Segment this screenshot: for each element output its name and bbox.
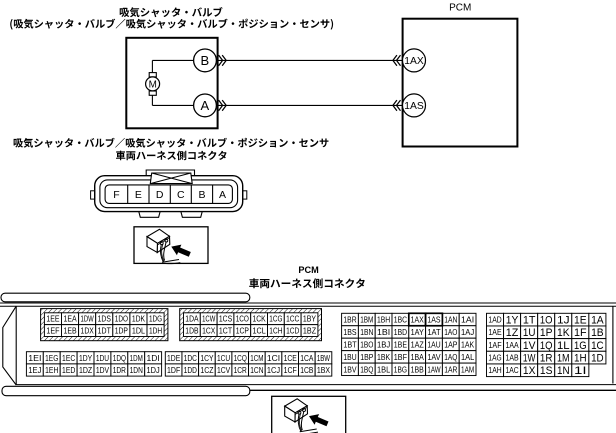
svg-text:1BA: 1BA <box>411 352 425 362</box>
svg-text:1DA: 1DA <box>185 314 199 324</box>
svg-text:1C: 1C <box>591 340 604 352</box>
svg-text:1DQ: 1DQ <box>113 353 127 363</box>
svg-text:1DO: 1DO <box>115 314 129 324</box>
svg-text:1AK: 1AK <box>461 339 475 349</box>
svg-text:1CF: 1CF <box>284 365 297 375</box>
svg-text:1CE: 1CE <box>284 353 298 363</box>
svg-text:1B: 1B <box>591 327 604 339</box>
svg-text:1CB: 1CB <box>300 365 314 375</box>
svg-text:1CA: 1CA <box>300 353 314 363</box>
svg-text:1CK: 1CK <box>253 314 267 324</box>
svg-text:1EH: 1EH <box>45 365 58 375</box>
svg-text:1DX: 1DX <box>81 326 95 336</box>
svg-text:1BW: 1BW <box>317 353 330 363</box>
svg-text:1CC: 1CC <box>286 314 299 324</box>
svg-text:1DM: 1DM <box>130 353 143 363</box>
svg-text:1AY: 1AY <box>411 327 425 337</box>
svg-text:E: E <box>135 189 142 201</box>
svg-text:1EI: 1EI <box>28 353 41 363</box>
svg-text:1Y: 1Y <box>506 315 519 327</box>
svg-text:1DI: 1DI <box>147 353 160 363</box>
svg-text:C: C <box>177 189 185 201</box>
svg-text:1EE: 1EE <box>46 314 60 324</box>
svg-text:1AF: 1AF <box>488 340 501 350</box>
svg-text:1R: 1R <box>540 353 553 365</box>
svg-text:1J: 1J <box>557 315 570 327</box>
svg-text:B: B <box>198 189 205 201</box>
svg-text:1BK: 1BK <box>377 352 391 362</box>
svg-text:1AL: 1AL <box>461 352 475 362</box>
svg-text:1BJ: 1BJ <box>377 339 390 349</box>
svg-text:1AS: 1AS <box>404 101 424 112</box>
svg-text:1BV: 1BV <box>343 364 357 374</box>
svg-text:1DZ: 1DZ <box>79 365 92 375</box>
svg-text:1DT: 1DT <box>98 326 111 336</box>
svg-text:1BU: 1BU <box>343 352 356 362</box>
svg-text:1AH: 1AH <box>488 365 501 375</box>
svg-text:1DP: 1DP <box>115 326 129 336</box>
svg-text:1CT: 1CT <box>219 326 232 336</box>
svg-text:1EJ: 1EJ <box>28 365 41 375</box>
svg-text:1L: 1L <box>557 340 570 352</box>
svg-text:1EB: 1EB <box>63 326 77 336</box>
svg-text:1BZ: 1BZ <box>303 326 316 336</box>
svg-text:1AR: 1AR <box>444 364 457 374</box>
svg-text:1CX: 1CX <box>202 326 216 336</box>
svg-text:1DN: 1DN <box>130 365 143 375</box>
svg-text:1A: 1A <box>591 315 604 327</box>
svg-text:1AX: 1AX <box>404 56 424 67</box>
svg-text:1DH: 1DH <box>149 326 162 336</box>
svg-text:1DL: 1DL <box>132 326 146 336</box>
svg-text:1CL: 1CL <box>253 326 267 336</box>
svg-text:1BM: 1BM <box>360 314 373 324</box>
svg-text:1CO: 1CO <box>236 314 250 324</box>
svg-text:1CS: 1CS <box>219 314 233 324</box>
svg-text:1AG: 1AG <box>488 353 501 363</box>
svg-text:1CJ: 1CJ <box>267 365 280 375</box>
svg-text:1CM: 1CM <box>250 353 263 363</box>
svg-text:1CI: 1CI <box>267 353 280 363</box>
svg-text:1CP: 1CP <box>236 326 250 336</box>
svg-text:1BY: 1BY <box>303 314 317 324</box>
svg-text:1CQ: 1CQ <box>234 353 248 363</box>
svg-text:1AD: 1AD <box>488 315 501 325</box>
svg-text:1DB: 1DB <box>185 326 199 336</box>
svg-text:1AB: 1AB <box>505 353 519 363</box>
svg-text:1AE: 1AE <box>488 327 502 337</box>
svg-text:1BE: 1BE <box>394 339 408 349</box>
svg-text:1DR: 1DR <box>113 365 126 375</box>
svg-text:1CW: 1CW <box>202 314 215 324</box>
svg-text:1AQ: 1AQ <box>444 352 458 362</box>
svg-text:1DY: 1DY <box>79 353 93 363</box>
svg-text:1AV: 1AV <box>427 352 441 362</box>
svg-text:1AM: 1AM <box>461 364 474 374</box>
svg-text:1DF: 1DF <box>167 365 180 375</box>
svg-text:1P: 1P <box>540 327 553 339</box>
svg-text:1AO: 1AO <box>444 327 458 337</box>
svg-text:PCM: PCM <box>298 265 319 275</box>
svg-text:1CU: 1CU <box>217 353 230 363</box>
svg-text:1CR: 1CR <box>234 365 247 375</box>
svg-text:1BO: 1BO <box>360 339 374 349</box>
svg-text:A: A <box>200 98 209 113</box>
svg-text:1AJ: 1AJ <box>461 327 474 337</box>
svg-text:1EF: 1EF <box>46 326 59 336</box>
svg-text:1H: 1H <box>574 353 587 365</box>
svg-text:1O: 1O <box>540 315 553 327</box>
svg-text:M: M <box>149 80 157 91</box>
svg-text:1EC: 1EC <box>62 353 75 363</box>
svg-text:1DE: 1DE <box>167 353 181 363</box>
svg-text:1AP: 1AP <box>444 339 458 349</box>
svg-text:D: D <box>156 189 164 201</box>
svg-text:1EA: 1EA <box>63 314 77 324</box>
svg-text:1CH: 1CH <box>269 326 282 336</box>
svg-text:1BH: 1BH <box>377 314 390 324</box>
svg-text:1AA: 1AA <box>505 340 519 350</box>
svg-text:1BC: 1BC <box>394 314 407 324</box>
svg-text:1BN: 1BN <box>360 327 373 337</box>
svg-text:1G: 1G <box>574 340 587 352</box>
svg-text:1E: 1E <box>574 315 587 327</box>
svg-text:1T: 1T <box>523 315 536 327</box>
svg-text:1F: 1F <box>574 327 587 339</box>
svg-text:1AI: 1AI <box>461 314 474 324</box>
svg-text:1V: 1V <box>523 340 536 352</box>
svg-text:1DK: 1DK <box>132 314 146 324</box>
svg-text:1DC: 1DC <box>184 353 197 363</box>
svg-text:1Z: 1Z <box>506 327 519 339</box>
svg-text:1CV: 1CV <box>217 365 231 375</box>
svg-text:1BF: 1BF <box>394 352 407 362</box>
svg-text:1AC: 1AC <box>505 365 518 375</box>
svg-text:1BQ: 1BQ <box>360 364 374 374</box>
svg-text:1CG: 1CG <box>269 314 282 324</box>
svg-text:1BB: 1BB <box>411 364 425 374</box>
svg-text:1BI: 1BI <box>377 327 390 337</box>
svg-text:1U: 1U <box>523 327 536 339</box>
svg-text:1X: 1X <box>523 365 536 377</box>
svg-text:1CY: 1CY <box>200 353 214 363</box>
svg-text:1S: 1S <box>540 365 553 377</box>
svg-text:1DD: 1DD <box>184 365 197 375</box>
svg-text:1CD: 1CD <box>286 326 299 336</box>
svg-text:1EG: 1EG <box>45 353 58 363</box>
svg-text:1BG: 1BG <box>394 364 407 374</box>
svg-text:1Q: 1Q <box>540 340 553 352</box>
svg-text:A: A <box>219 189 226 201</box>
svg-text:1CN: 1CN <box>250 365 263 375</box>
svg-text:1DU: 1DU <box>96 353 109 363</box>
svg-text:1BR: 1BR <box>343 314 356 324</box>
svg-text:1BD: 1BD <box>394 327 407 337</box>
svg-text:1DW: 1DW <box>81 314 94 324</box>
svg-text:1M: 1M <box>557 353 570 365</box>
svg-text:1N: 1N <box>557 365 570 377</box>
svg-text:1BP: 1BP <box>360 352 374 362</box>
svg-text:1D: 1D <box>591 353 604 365</box>
svg-text:1AU: 1AU <box>427 339 440 349</box>
svg-text:1AX: 1AX <box>411 314 425 324</box>
svg-text:PCM: PCM <box>449 3 471 14</box>
svg-text:1AS: 1AS <box>427 314 441 324</box>
svg-text:1ED: 1ED <box>62 365 75 375</box>
svg-text:1AZ: 1AZ <box>411 339 424 349</box>
svg-text:1I: 1I <box>574 365 587 377</box>
svg-text:1AN: 1AN <box>444 314 457 324</box>
svg-text:1BX: 1BX <box>317 365 331 375</box>
svg-text:1BS: 1BS <box>343 327 357 337</box>
svg-text:B: B <box>200 53 209 68</box>
svg-text:1BL: 1BL <box>377 364 391 374</box>
svg-text:1K: 1K <box>557 327 570 339</box>
svg-text:1DV: 1DV <box>96 365 110 375</box>
svg-text:1DG: 1DG <box>149 314 162 324</box>
svg-text:1W: 1W <box>523 353 536 365</box>
svg-text:1DS: 1DS <box>98 314 112 324</box>
svg-text:1BT: 1BT <box>343 339 356 349</box>
svg-text:F: F <box>113 189 119 201</box>
svg-text:1DJ: 1DJ <box>147 365 160 375</box>
svg-text:1AT: 1AT <box>427 327 440 337</box>
svg-text:1CZ: 1CZ <box>200 365 213 375</box>
svg-text:1AW: 1AW <box>427 364 440 374</box>
